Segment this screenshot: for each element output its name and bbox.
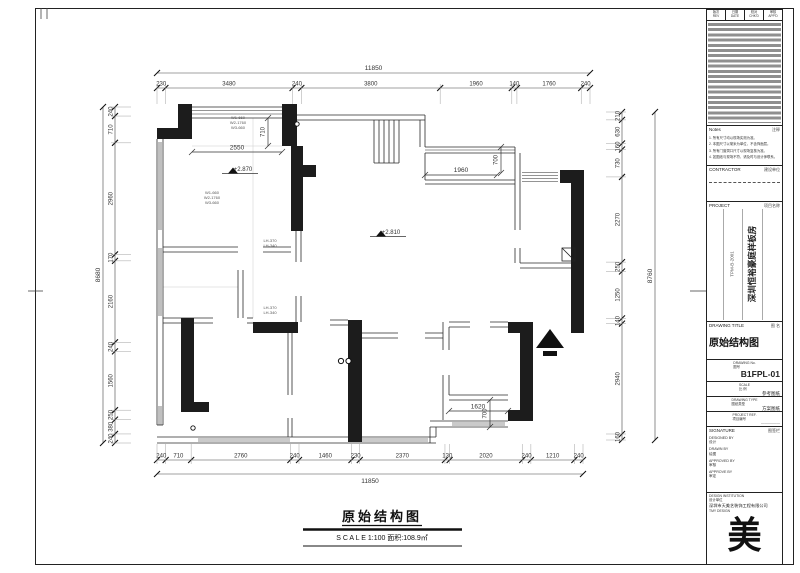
svg-text:2960: 2960 bbox=[109, 191, 115, 205]
scale-row: SCALE比 例 参考图纸 bbox=[707, 382, 782, 397]
svg-text:8680: 8680 bbox=[95, 267, 102, 282]
svg-text:3480: 3480 bbox=[222, 82, 236, 88]
revision-table-header: 版次REV 日期DATE 校对CHK'D 审核APP'D bbox=[707, 9, 782, 21]
svg-text:630: 630 bbox=[616, 126, 622, 137]
project-code-vertical: TPM-B-2001 bbox=[730, 251, 735, 277]
svg-text:140: 140 bbox=[616, 315, 622, 326]
svg-text:240: 240 bbox=[290, 454, 301, 460]
drawing-no-value: B1FPL-01 bbox=[741, 369, 780, 379]
dim-label: 2550 bbox=[230, 145, 245, 152]
drawing-title-section: DRAWING TITLE图 名 原始结构图 bbox=[707, 322, 782, 360]
pipe-symbol bbox=[346, 358, 351, 363]
construction-lines bbox=[163, 118, 282, 318]
svg-text:240: 240 bbox=[109, 341, 115, 352]
svg-text:2160: 2160 bbox=[109, 294, 115, 308]
svg-text:2940: 2940 bbox=[616, 371, 622, 385]
svg-text:230: 230 bbox=[351, 454, 362, 460]
svg-text:2760: 2760 bbox=[234, 454, 248, 460]
svg-text:240: 240 bbox=[109, 106, 115, 117]
svg-text:380: 380 bbox=[109, 421, 115, 432]
svg-text:240: 240 bbox=[292, 82, 303, 88]
svg-text:240: 240 bbox=[156, 454, 167, 460]
svg-text:2370: 2370 bbox=[396, 454, 410, 460]
pipe-symbol bbox=[338, 358, 343, 363]
entry-arrow-bar bbox=[543, 351, 557, 356]
pipe-symbol bbox=[295, 122, 299, 126]
svg-text:W3-660: W3-660 bbox=[205, 200, 220, 205]
revision-rows bbox=[708, 23, 781, 123]
revision-table: 版次REV 日期DATE 校对CHK'D 审核APP'D bbox=[707, 9, 782, 126]
svg-text:LH-340: LH-340 bbox=[263, 243, 277, 248]
drawing-sheet: { "sheet": { "bottom_title": "原始结构图", "b… bbox=[0, 0, 800, 573]
svg-text:1560: 1560 bbox=[109, 373, 115, 387]
project-body: TPM-B-2001 深圳恒裕豪庭样板房 bbox=[709, 209, 780, 321]
svg-text:240: 240 bbox=[574, 454, 585, 460]
plan-scale-text: S C A L E 1:100 面积:108.9㎡ bbox=[336, 533, 428, 542]
svg-text:W3-660: W3-660 bbox=[231, 125, 246, 130]
svg-text:11850: 11850 bbox=[365, 65, 383, 72]
svg-text:2020: 2020 bbox=[479, 454, 493, 460]
title-block: 版次REV 日期DATE 校对CHK'D 审核APP'D Notes注释 1. … bbox=[706, 8, 783, 565]
svg-text:1210: 1210 bbox=[546, 454, 560, 460]
svg-text:11850: 11850 bbox=[361, 478, 379, 485]
svg-text:140: 140 bbox=[509, 82, 520, 88]
floor-plan-svg: 2550 710 1960 700 1620 700 +2.870 +2.810… bbox=[0, 0, 800, 573]
contractor-line bbox=[709, 182, 780, 183]
entry-arrow bbox=[536, 329, 564, 348]
dim-label: 710 bbox=[261, 126, 267, 137]
svg-text:1250: 1250 bbox=[616, 288, 622, 302]
svg-text:250: 250 bbox=[616, 261, 622, 272]
svg-text:3800: 3800 bbox=[364, 82, 378, 88]
svg-text:240: 240 bbox=[522, 454, 533, 460]
svg-text:130: 130 bbox=[442, 454, 453, 460]
svg-text:2270: 2270 bbox=[616, 212, 622, 226]
svg-text:710: 710 bbox=[173, 454, 184, 460]
svg-text:8760: 8760 bbox=[647, 268, 654, 283]
svg-text:1460: 1460 bbox=[319, 454, 333, 460]
level-label: +2.810 bbox=[382, 230, 401, 236]
institution-section: DESIGN INSTITUTION 设计单位 深圳市天美艺装饰工程有限公司 T… bbox=[707, 493, 782, 564]
dim-label: 700 bbox=[483, 408, 489, 419]
svg-text:250: 250 bbox=[109, 409, 115, 420]
project-ref-row: PROJECT REF.项目编号 ————— bbox=[707, 412, 782, 427]
project-name-vertical: 深圳恒裕豪庭样板房 bbox=[746, 226, 758, 303]
dim-label: 1960 bbox=[454, 167, 469, 174]
svg-text:230: 230 bbox=[156, 82, 167, 88]
walls-thin bbox=[157, 107, 571, 443]
drawing-no-section: DRAWING No.图号 B1FPL-01 bbox=[707, 360, 782, 382]
contractor-section: CONTRACTOR建设单位 bbox=[707, 166, 782, 202]
svg-text:240: 240 bbox=[581, 82, 592, 88]
svg-text:LH-340: LH-340 bbox=[263, 310, 277, 315]
level-label: +2.870 bbox=[234, 167, 253, 173]
svg-text:170: 170 bbox=[109, 252, 115, 263]
svg-text:210: 210 bbox=[616, 110, 622, 121]
company-logo: 美 bbox=[709, 512, 780, 560]
plan-title-block: 原始结构图 S C A L E 1:100 面积:108.9㎡ bbox=[303, 509, 462, 546]
svg-text:160: 160 bbox=[616, 431, 622, 442]
register-marks bbox=[28, 8, 706, 291]
svg-text:730: 730 bbox=[616, 158, 622, 169]
drawing-type-row: DRAWING TYPE图纸类型 方案图纸 bbox=[707, 397, 782, 412]
svg-text:160: 160 bbox=[616, 141, 622, 152]
pipe-symbol bbox=[191, 426, 195, 430]
plan-title: 原始结构图 bbox=[342, 509, 422, 524]
svg-text:710: 710 bbox=[109, 124, 115, 135]
project-section: PROJECT项目名称 TPM-B-2001 深圳恒裕豪庭样板房 bbox=[707, 202, 782, 322]
dim-label: 700 bbox=[494, 154, 500, 165]
signature-section: SIGNATURE图签栏 DESIGNED BY设计 DRAWN BY绘图 AP… bbox=[707, 427, 782, 493]
drawing-title-value: 原始结构图 bbox=[709, 334, 780, 349]
svg-text:240: 240 bbox=[109, 433, 115, 444]
svg-text:1960: 1960 bbox=[469, 82, 483, 88]
notes-section: Notes注释 1. 所有尺寸均以现场实测为准。 2. 本图尺寸以毫米为单位，不… bbox=[707, 126, 782, 166]
svg-text:1760: 1760 bbox=[542, 82, 556, 88]
